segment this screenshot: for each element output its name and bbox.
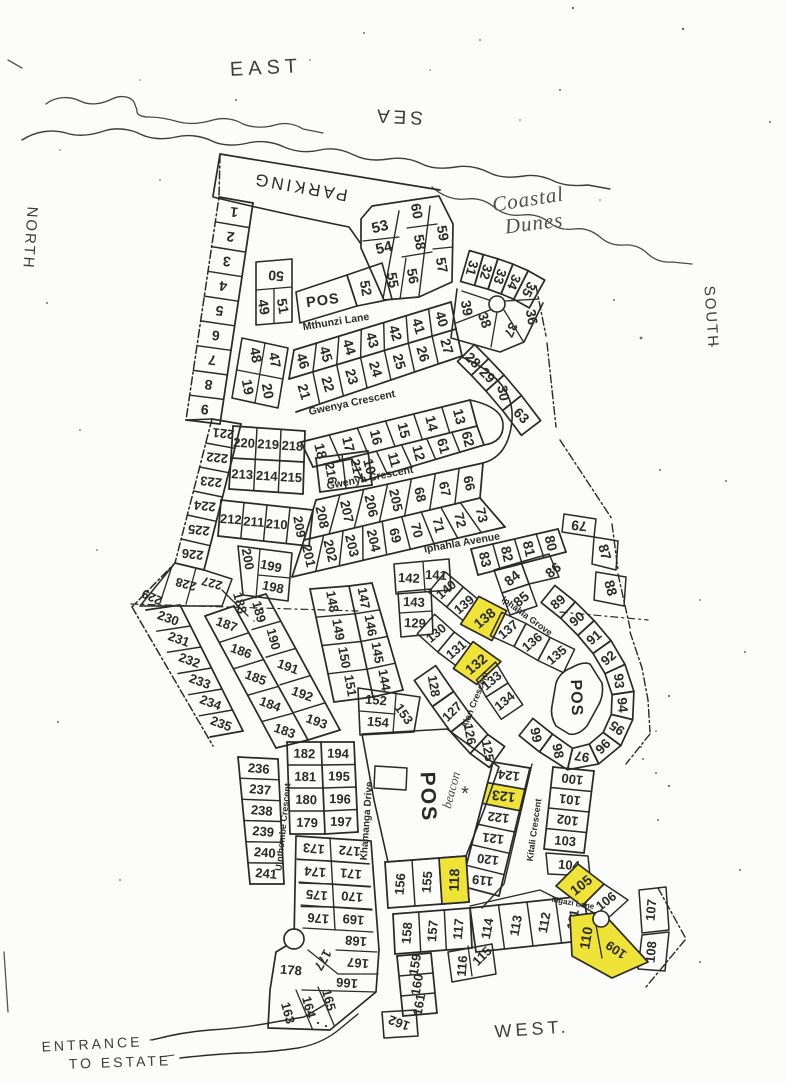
svg-text:POS: POS (567, 679, 585, 716)
svg-text:154: 154 (367, 714, 391, 731)
svg-text:176: 176 (307, 910, 330, 927)
svg-text:48: 48 (247, 346, 265, 364)
svg-text:220: 220 (233, 435, 255, 451)
svg-text:36: 36 (523, 308, 541, 326)
svg-text:94: 94 (614, 697, 630, 714)
svg-text:223: 223 (200, 473, 223, 490)
svg-text:172: 172 (338, 842, 361, 859)
svg-text:52: 52 (357, 279, 375, 297)
svg-text:98: 98 (549, 742, 566, 760)
svg-text:178: 178 (280, 962, 303, 979)
svg-text:167: 167 (347, 955, 370, 972)
svg-text:116: 116 (454, 955, 471, 977)
svg-text:166: 166 (336, 975, 359, 992)
svg-text:56: 56 (404, 267, 422, 285)
svg-text:57: 57 (433, 256, 451, 274)
svg-text:SEA: SEA (372, 104, 423, 128)
svg-text:155: 155 (419, 871, 436, 894)
svg-text:55: 55 (384, 271, 402, 289)
svg-text:175: 175 (305, 887, 328, 904)
svg-text:39: 39 (458, 299, 476, 317)
svg-text:POS: POS (416, 771, 441, 822)
svg-text:171: 171 (339, 865, 362, 882)
svg-text:182: 182 (293, 746, 315, 762)
svg-text:224: 224 (193, 497, 217, 514)
svg-text:174: 174 (303, 863, 327, 880)
svg-text:129: 129 (404, 615, 426, 631)
svg-text:194: 194 (327, 746, 350, 762)
svg-text:59: 59 (434, 224, 452, 242)
svg-text:168: 168 (345, 933, 368, 950)
svg-text:222: 222 (206, 449, 229, 466)
svg-text:60: 60 (408, 202, 426, 220)
svg-text:218: 218 (281, 438, 303, 454)
svg-text:210: 210 (265, 516, 288, 532)
svg-text:225: 225 (187, 522, 210, 539)
svg-text:118: 118 (446, 868, 463, 891)
svg-text:99: 99 (527, 726, 544, 743)
svg-text:152: 152 (365, 692, 388, 709)
svg-text:EAST: EAST (229, 55, 302, 81)
svg-text:124: 124 (496, 767, 520, 785)
svg-text:50: 50 (267, 267, 284, 284)
svg-text:239: 239 (252, 823, 275, 840)
svg-text:101: 101 (558, 791, 581, 809)
svg-text:143: 143 (403, 594, 425, 610)
svg-text:47: 47 (266, 351, 284, 369)
svg-text:58: 58 (411, 233, 429, 251)
svg-text:20: 20 (259, 382, 277, 400)
svg-text:123: 123 (491, 787, 516, 806)
svg-text:103: 103 (554, 832, 577, 849)
svg-text:117: 117 (450, 918, 467, 940)
svg-text:107: 107 (643, 899, 660, 922)
svg-text:93: 93 (611, 673, 627, 690)
svg-text:51: 51 (274, 297, 292, 315)
svg-text:179: 179 (296, 815, 318, 831)
svg-text:213: 213 (231, 466, 253, 482)
svg-text:240: 240 (253, 844, 276, 861)
svg-text:219: 219 (257, 436, 279, 452)
svg-text:79: 79 (570, 517, 587, 534)
svg-text:102: 102 (556, 811, 579, 829)
svg-text:181: 181 (294, 769, 316, 785)
svg-text:158: 158 (398, 922, 415, 945)
svg-text:196: 196 (329, 791, 351, 807)
svg-text:173: 173 (302, 840, 325, 857)
svg-text:49: 49 (255, 298, 273, 316)
svg-text:226: 226 (181, 546, 204, 563)
svg-text:142: 142 (398, 570, 420, 586)
svg-text:122: 122 (487, 809, 510, 827)
svg-text:97: 97 (573, 748, 590, 765)
svg-text:19: 19 (239, 378, 257, 396)
svg-text:215: 215 (280, 469, 302, 485)
svg-text:120: 120 (476, 851, 499, 869)
svg-text:*: * (461, 783, 469, 805)
svg-text:157: 157 (424, 920, 441, 943)
svg-text:156: 156 (392, 873, 409, 896)
svg-text:212: 212 (220, 511, 243, 527)
svg-text:180: 180 (295, 792, 317, 808)
svg-text:100: 100 (561, 770, 584, 788)
svg-text:214: 214 (256, 468, 279, 484)
svg-text:121: 121 (481, 830, 504, 848)
svg-text:197: 197 (330, 814, 352, 830)
svg-text:170: 170 (341, 888, 364, 905)
svg-text:195: 195 (328, 768, 350, 784)
svg-text:238: 238 (250, 802, 273, 819)
svg-text:67: 67 (436, 480, 454, 498)
svg-text:236: 236 (247, 760, 270, 777)
svg-text:237: 237 (249, 781, 272, 798)
svg-text:211: 211 (243, 514, 265, 530)
svg-text:119: 119 (471, 872, 494, 889)
svg-text:169: 169 (342, 911, 365, 928)
